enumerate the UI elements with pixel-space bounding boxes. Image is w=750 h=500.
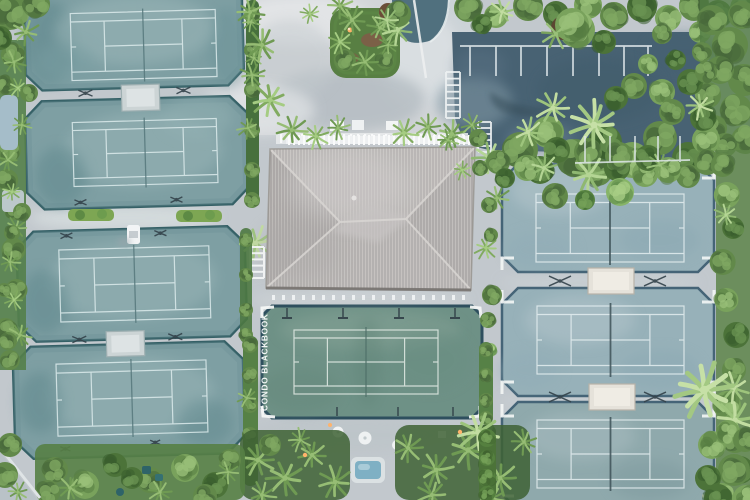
svg-text:CONDO BLACKBOOK: CONDO BLACKBOOK [260,313,270,411]
